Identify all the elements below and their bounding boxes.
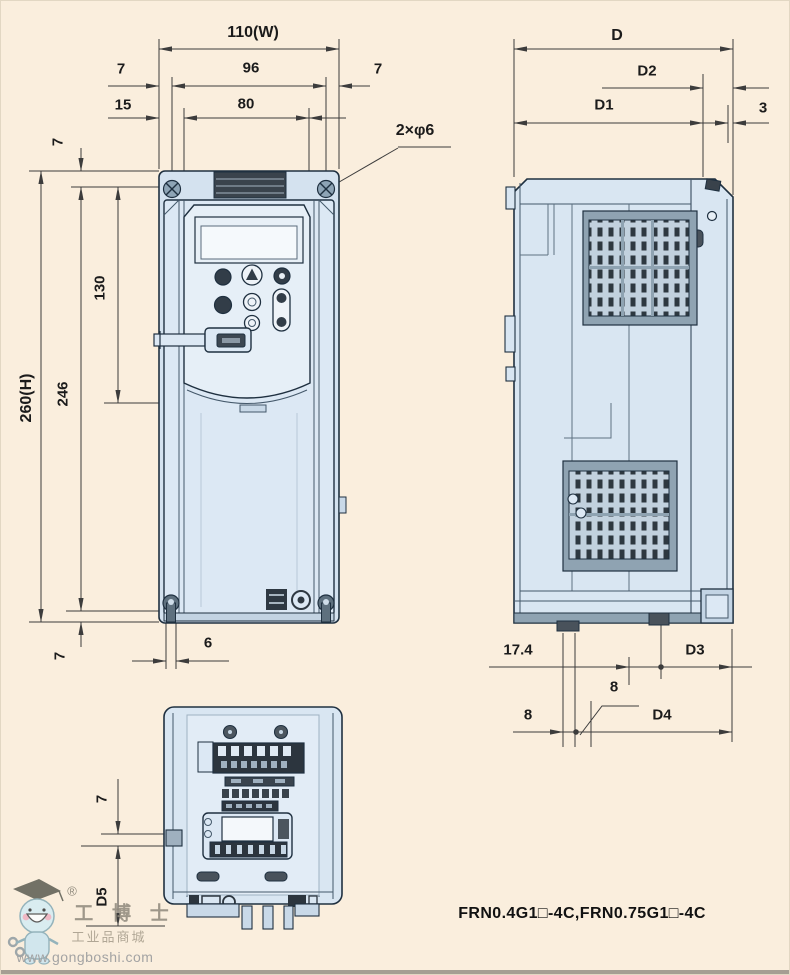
dim-keypad-height: 130 xyxy=(93,275,108,300)
dim-margin-right: 7 xyxy=(374,62,382,77)
dim-margin-left: 7 xyxy=(117,62,125,77)
dim-d3: D3 xyxy=(685,643,704,658)
keypad-lcd-display xyxy=(195,217,303,263)
watermark-brand-text: 工 博 士 xyxy=(74,899,176,926)
dim-depth-d2: D2 xyxy=(637,64,656,79)
dim-margin-bottom: 7 xyxy=(53,652,68,660)
dim-d4: D4 xyxy=(652,708,671,723)
mounting-screw-top-left-icon xyxy=(164,181,181,198)
model-number-caption: FRN0.4G1□-4C,FRN0.75G1□-4C xyxy=(458,905,706,923)
dim-margin-top: 7 xyxy=(51,138,66,146)
dimension-drawing: 110(W) 7 96 7 15 80 2×φ6 7 260(H) 246 13… xyxy=(0,0,790,975)
watermark-tagline-text: 工业品商城 xyxy=(71,927,146,946)
dim-17-4: 17.4 xyxy=(503,643,532,658)
control-terminal-module xyxy=(203,813,292,859)
dim-mounting-holes-note: 2×φ6 xyxy=(396,123,435,139)
front-top-vent xyxy=(214,172,286,198)
bottom-cover-tabs xyxy=(187,904,319,929)
watermark-url-text: www.gongboshi.com xyxy=(17,949,154,965)
dim-hole-span: 96 xyxy=(243,61,260,76)
bottom-view-drawing xyxy=(164,707,342,929)
dim-slot-width: 6 xyxy=(204,636,212,651)
dim-hole-pitch: 246 xyxy=(56,381,71,406)
dim-height-total: 260(H) xyxy=(19,374,35,423)
dim-8-lower: 8 xyxy=(524,708,532,723)
top-tab-slot-icon xyxy=(705,179,721,191)
mounting-screw-top-right-icon xyxy=(318,181,335,198)
dim-depth-d1: D1 xyxy=(594,98,613,113)
front-view-drawing xyxy=(154,171,346,623)
side-screw-hole-icon xyxy=(708,212,717,221)
dim-inset-15: 15 xyxy=(115,98,132,113)
drawing-linework xyxy=(1,1,790,975)
dim-depth-total: D xyxy=(611,28,623,44)
dim-keypad-span: 80 xyxy=(238,97,255,112)
side-vent-grille-bottom xyxy=(563,461,677,571)
dim-back-clearance: 3 xyxy=(759,101,767,116)
pot-shaft-bottom-icon xyxy=(166,830,182,846)
side-vent-grille-top xyxy=(583,211,697,325)
image-bottom-edge xyxy=(1,970,789,974)
watermark-registered-icon: ® xyxy=(67,884,77,899)
dim-width-total: 110(W) xyxy=(227,25,279,41)
dim-8-upper: 8 xyxy=(610,680,618,695)
terminal-block xyxy=(198,742,304,773)
dim-bottom-margin-7: 7 xyxy=(95,795,110,803)
side-view-drawing xyxy=(505,179,733,631)
